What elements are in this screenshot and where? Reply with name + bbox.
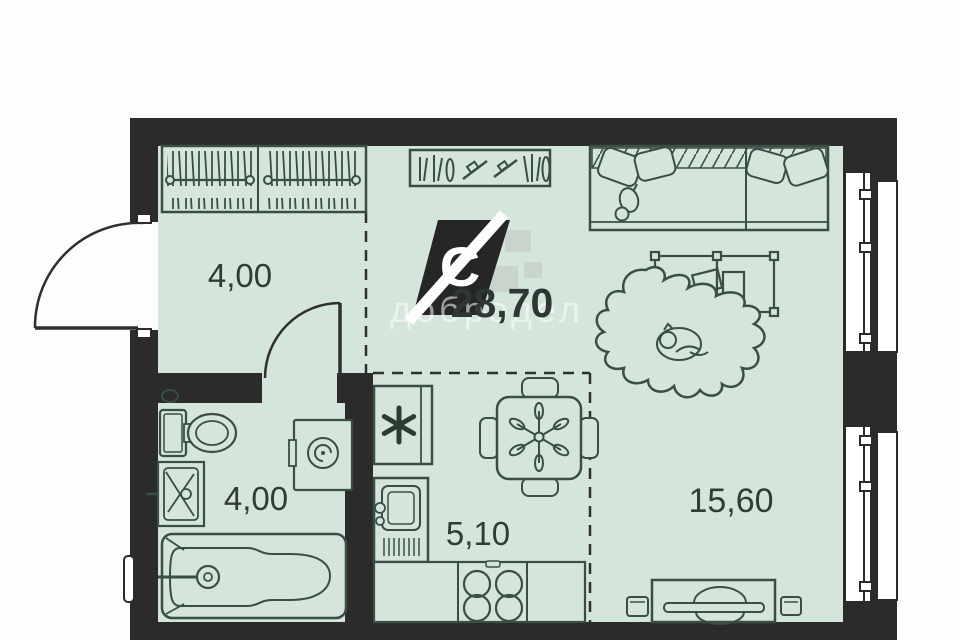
entry-door-arc <box>35 223 143 328</box>
bookshelf <box>410 150 550 186</box>
wall-bathroom-top <box>130 373 262 403</box>
window-top <box>845 172 897 352</box>
bed <box>590 146 830 230</box>
window-bottom <box>845 426 897 602</box>
chair-top <box>522 378 558 398</box>
area-label-kitchen: 5,10 <box>446 515 510 552</box>
kitchen-counter <box>374 561 585 622</box>
wall-top <box>130 118 897 146</box>
entry-door-stop <box>137 329 151 338</box>
towel-rail <box>124 556 134 602</box>
chair-right <box>580 418 598 458</box>
tv-stand <box>627 580 801 624</box>
wardrobe <box>162 146 366 212</box>
floor-plan-canvas: C добродел 4,00 28,70 4,00 5,10 15,60 <box>0 0 960 640</box>
chair-left <box>480 418 498 458</box>
wall-left-upper <box>130 118 158 222</box>
stool-right <box>781 597 801 615</box>
washing-machine <box>289 420 352 490</box>
area-label-hallway: 4,00 <box>208 257 272 294</box>
area-label-total: 28,70 <box>451 280 554 326</box>
chair-bottom <box>522 478 558 496</box>
entry-door-stop <box>137 214 151 223</box>
fridge <box>374 386 432 464</box>
area-label-bathroom: 4,00 <box>224 480 288 517</box>
kitchen-sink <box>374 478 428 562</box>
entry-door <box>35 214 151 338</box>
stool-left <box>627 597 648 616</box>
tv <box>664 603 764 612</box>
wall-bathroom-right <box>345 373 373 622</box>
faucet <box>375 503 385 513</box>
wall-bottom <box>130 622 897 640</box>
area-label-living: 15,60 <box>688 482 773 520</box>
floor-plan: C добродел 4,00 28,70 4,00 5,10 15,60 <box>0 0 960 640</box>
